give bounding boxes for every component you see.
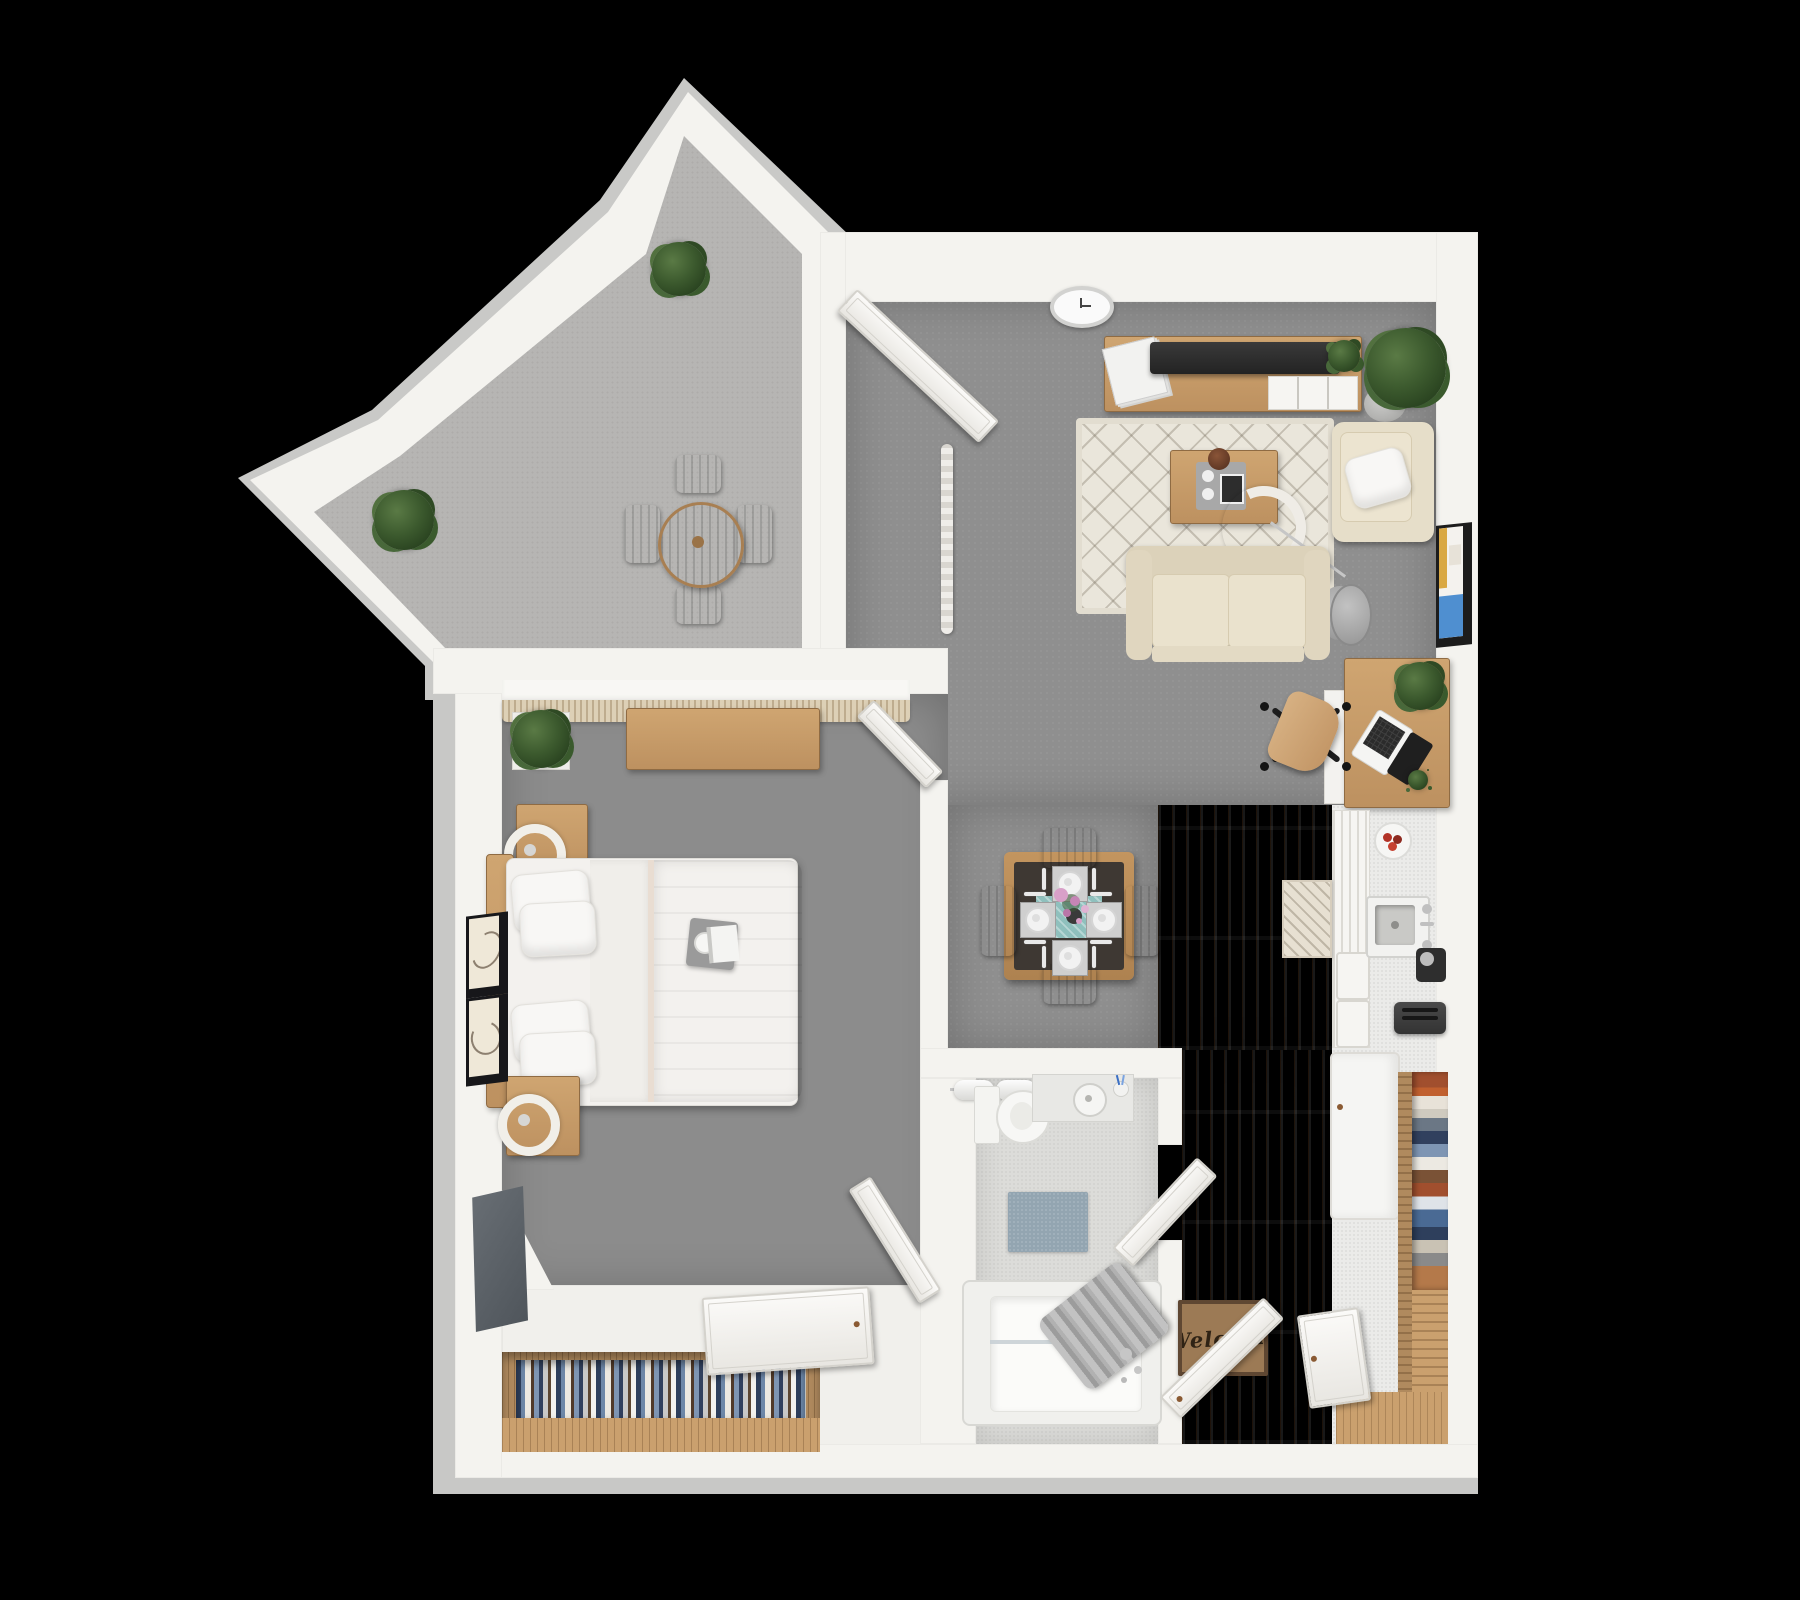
tub-faucet-icon [1120,1348,1132,1360]
wall-balcony-living [820,232,846,702]
patio-table-hub [692,536,704,548]
kitchen-rug [1282,880,1332,958]
potted-plant-icon [1328,340,1360,372]
potted-plant-icon [374,490,434,550]
place-setting [1086,902,1122,938]
bed-book [706,925,739,963]
bed-pillow [519,900,598,958]
dining-chair [1124,886,1160,956]
dining-chair [1042,828,1096,868]
wall-left-edge [433,660,457,1494]
office-chair [1258,688,1354,784]
closet-panel-door [701,1286,874,1376]
bed-duvet [648,860,802,1102]
cutlery-icon [1042,946,1046,968]
wall-bottom-edge [433,1478,1478,1494]
flowers [1054,888,1068,902]
bathroom-vanity [1032,1074,1134,1122]
patio-chair [624,505,660,563]
framed-art [466,993,508,1086]
cutlery-icon [1090,940,1112,944]
potted-plant-icon [1408,770,1428,790]
kitchen-drawer [1336,952,1370,1000]
potted-plant-icon [652,242,706,296]
side-table [1330,584,1372,646]
patio-chair [675,586,721,624]
framed-art [466,911,508,998]
hall-closet-door-open [1297,1307,1371,1409]
cutlery-icon [1090,892,1112,896]
cutlery-icon [1092,868,1096,890]
hall-closet-side [1398,1072,1412,1422]
wall-top [820,232,1478,302]
bedroom-closet-shelf [502,1418,820,1452]
refrigerator [1330,1052,1400,1220]
flower-vase [1066,908,1082,924]
cutlery-icon [1092,946,1096,968]
floor-plan-canvas: Welcome [0,0,1800,1600]
dining-chair [980,886,1016,956]
cutlery-icon [1024,940,1046,944]
television [1150,342,1340,374]
cutlery-icon [1042,868,1046,890]
patio-chair [675,455,721,493]
dresser [626,708,820,770]
fruit-plate [1374,822,1412,860]
console-cabinet-doors [1268,376,1358,410]
toaster [1394,1002,1446,1034]
framed-art [1436,522,1472,648]
sofa [1126,546,1330,664]
place-setting [1052,940,1088,976]
hall-closet-clothes [1412,1072,1448,1290]
cutlery-icon [1024,892,1046,896]
place-setting [1020,902,1056,938]
table-lamp-icon [498,1094,560,1156]
potted-plant-icon [1396,662,1444,710]
armchair [1332,422,1434,542]
bath-mat [1008,1192,1088,1252]
wall-bathroom-right-upper [1158,1078,1182,1145]
wall-bedroom-right [920,780,948,1050]
hanging-blind [941,444,953,634]
tall-potted-plant-icon [1366,328,1446,408]
kitchen-drawer [1336,1000,1370,1048]
potted-plant-icon [512,710,570,768]
wall-clock-icon [1050,286,1114,328]
coffee-maker [1416,948,1446,982]
bed-sheet [590,860,654,1102]
decor-bowl [1208,448,1230,470]
